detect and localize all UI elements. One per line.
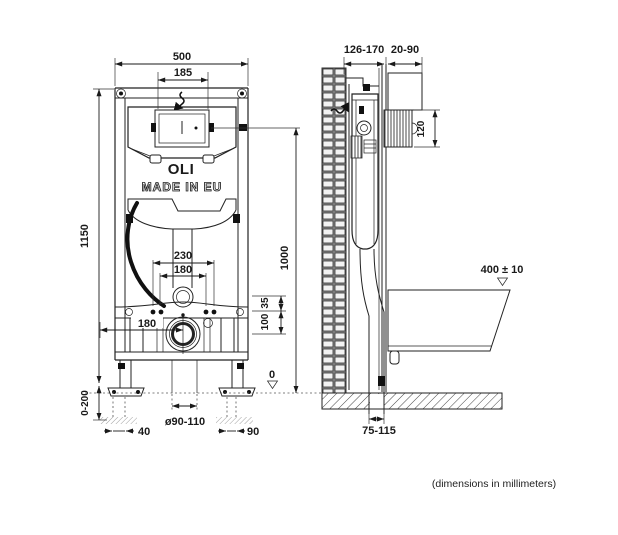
cistern-tank bbox=[128, 107, 236, 163]
dim-button-height: 1000 bbox=[211, 128, 300, 393]
fill-valve-icon bbox=[357, 121, 371, 135]
leg-bolt bbox=[118, 363, 125, 369]
dim-bar-to-drain: 100 bbox=[252, 311, 286, 334]
svg-text:75-115: 75-115 bbox=[362, 425, 396, 437]
svg-text:120: 120 bbox=[416, 120, 427, 137]
svg-text:1000: 1000 bbox=[279, 246, 291, 270]
cistern-profile bbox=[351, 94, 378, 249]
dim-outlet-offset: 75-115 bbox=[362, 409, 396, 437]
toilet-bowl bbox=[388, 290, 510, 364]
dim-drain-diameter: ø90-110 bbox=[165, 406, 205, 428]
side-view: 400 ± 10 126-170 20-90 120 75-115 bbox=[322, 44, 523, 437]
mount-tab bbox=[203, 155, 214, 163]
units-note: (dimensions in millimeters) bbox=[432, 478, 556, 490]
floor-datum: 0 bbox=[85, 369, 322, 393]
fixing-bolt bbox=[151, 310, 156, 315]
bowl-height-mark: 400 ± 10 bbox=[481, 264, 524, 286]
svg-text:90: 90 bbox=[247, 426, 259, 438]
dim-inlet-to-bar: 35 bbox=[252, 296, 286, 311]
technical-drawing-page: OLI MADE IN EU bbox=[0, 0, 618, 535]
datum-zero-label: 0 bbox=[269, 369, 275, 381]
dim-wall-finish: 20-90 bbox=[388, 44, 422, 74]
svg-text:126-170: 126-170 bbox=[344, 44, 384, 56]
dim-frame-depth: 126-170 bbox=[344, 44, 386, 74]
access-panel bbox=[151, 110, 214, 147]
svg-text:230: 230 bbox=[174, 250, 192, 262]
fixing-bolt bbox=[212, 310, 217, 315]
floor-level-hatch bbox=[100, 417, 137, 424]
svg-text:35: 35 bbox=[260, 297, 271, 309]
brand-logo: OLI bbox=[168, 161, 195, 178]
flush-direction-arrow-icon bbox=[180, 92, 184, 108]
flush-mechanism bbox=[351, 136, 362, 158]
svg-text:180: 180 bbox=[174, 264, 192, 276]
svg-text:180: 180 bbox=[138, 318, 156, 330]
dim-total-height: 1150 bbox=[79, 89, 114, 383]
svg-text:185: 185 bbox=[174, 67, 192, 79]
datum-triangle-icon bbox=[268, 381, 278, 389]
pipe-elbow bbox=[378, 376, 385, 386]
made-in-label: MADE IN EU bbox=[142, 180, 223, 194]
frame-bolt bbox=[363, 84, 370, 91]
tank-clip bbox=[233, 214, 240, 223]
datum-triangle-icon bbox=[498, 278, 508, 286]
svg-text:40: 40 bbox=[138, 426, 150, 438]
mount-tab bbox=[150, 155, 161, 163]
panel-clip bbox=[151, 123, 156, 132]
mounting-bar bbox=[115, 302, 248, 318]
svg-text:400 ± 10: 400 ± 10 bbox=[481, 264, 524, 276]
floor-section bbox=[322, 393, 502, 409]
svg-text:0-200: 0-200 bbox=[80, 390, 91, 416]
leg-bolt bbox=[237, 363, 244, 369]
floor-level-hatch bbox=[216, 417, 253, 424]
svg-text:100: 100 bbox=[260, 313, 271, 330]
fixing-bolt bbox=[204, 310, 209, 315]
wall-section bbox=[322, 68, 346, 393]
outlet-pipe bbox=[360, 249, 385, 414]
svg-text:ø90-110: ø90-110 bbox=[165, 416, 205, 428]
legs-and-feet bbox=[100, 360, 255, 424]
svg-text:500: 500 bbox=[173, 51, 191, 63]
inlet-fitting bbox=[173, 287, 193, 307]
front-view: OLI MADE IN EU bbox=[79, 51, 322, 438]
svg-text:1150: 1150 bbox=[79, 224, 91, 248]
installation-drawing: OLI MADE IN EU bbox=[0, 0, 618, 535]
dim-drain-offset: 180 bbox=[100, 317, 183, 338]
dim-bolt-spacing-inner: 180 bbox=[160, 264, 206, 306]
bowl-foot bbox=[390, 351, 399, 364]
dim-plate-height: 120 bbox=[414, 110, 440, 147]
fixing-bolt bbox=[159, 310, 164, 315]
wall-bracket-bolt bbox=[239, 124, 247, 131]
dim-foot-left: 40 bbox=[104, 426, 150, 438]
dim-leg-adjust: 0-200 bbox=[80, 386, 107, 420]
svg-text:20-90: 20-90 bbox=[391, 44, 419, 56]
dim-bolt-spacing-outer: 230 bbox=[153, 250, 214, 306]
dim-foot-right: 90 bbox=[218, 426, 259, 438]
panel-clip bbox=[209, 123, 214, 132]
